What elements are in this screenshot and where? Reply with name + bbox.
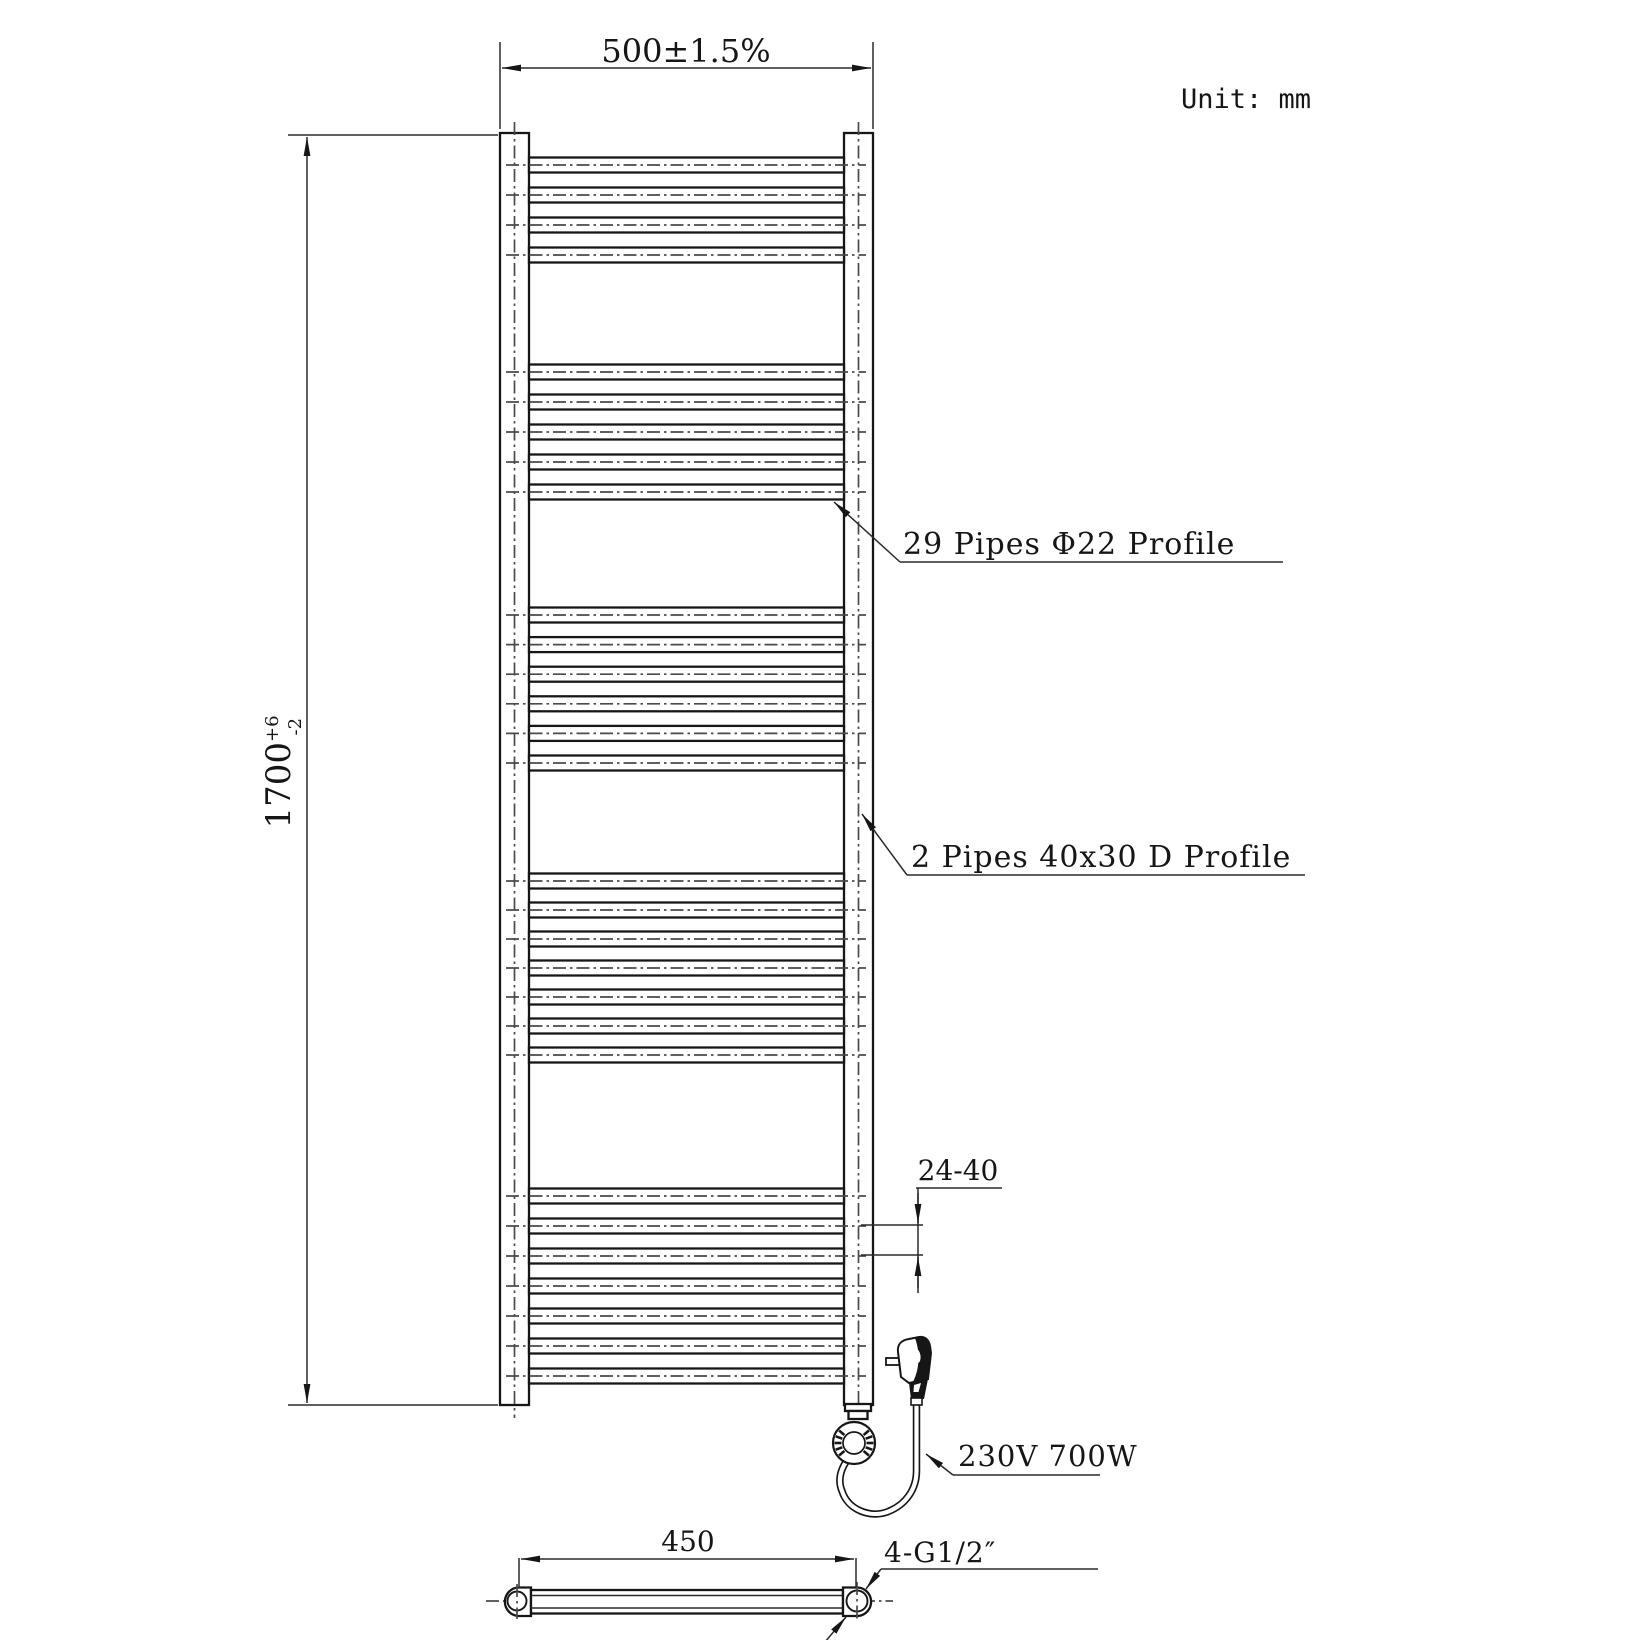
bottom-tube xyxy=(531,1590,843,1614)
towel-radiator-drawing: 500±1.5% 1700+6-2 24-40 29 Pipes Φ22 Pro… xyxy=(0,0,1640,1640)
width-dim-text: 500±1.5% xyxy=(601,32,770,70)
heating-element xyxy=(833,1404,875,1464)
dimension-bottom-span: 450 xyxy=(519,1525,856,1588)
pitch-dim-text: 24-40 xyxy=(918,1154,999,1187)
callout-thread: 4-G1/2″ xyxy=(825,1536,1098,1640)
power-plug xyxy=(886,1337,931,1405)
dimension-height: 1700+6-2 xyxy=(259,135,498,1405)
callout-round-pipes: 29 Pipes Φ22 Profile xyxy=(834,502,1283,562)
bottom-span-text: 450 xyxy=(661,1525,714,1558)
bottom-view xyxy=(486,1582,893,1621)
technical-drawing-page: 500±1.5% 1700+6-2 24-40 29 Pipes Φ22 Pro… xyxy=(0,0,1640,1640)
thread-label: 4-G1/2″ xyxy=(884,1536,996,1569)
callout-d-pipes: 2 Pipes 40x30 D Profile xyxy=(862,814,1305,875)
dimension-pitch: 24-40 xyxy=(861,1154,1002,1293)
unit-label: Unit: mm xyxy=(1181,84,1311,115)
round-pipes-label: 29 Pipes Φ22 Profile xyxy=(903,527,1235,562)
dimension-width: 500±1.5% xyxy=(500,32,873,129)
callout-power: 230V 700W xyxy=(926,1439,1138,1475)
d-pipes-label: 2 Pipes 40x30 D Profile xyxy=(911,840,1291,875)
front-view xyxy=(500,122,873,1418)
pipe-rungs xyxy=(506,158,866,1384)
height-dim-text: 1700+6-2 xyxy=(259,715,306,828)
power-label: 230V 700W xyxy=(958,1439,1138,1473)
